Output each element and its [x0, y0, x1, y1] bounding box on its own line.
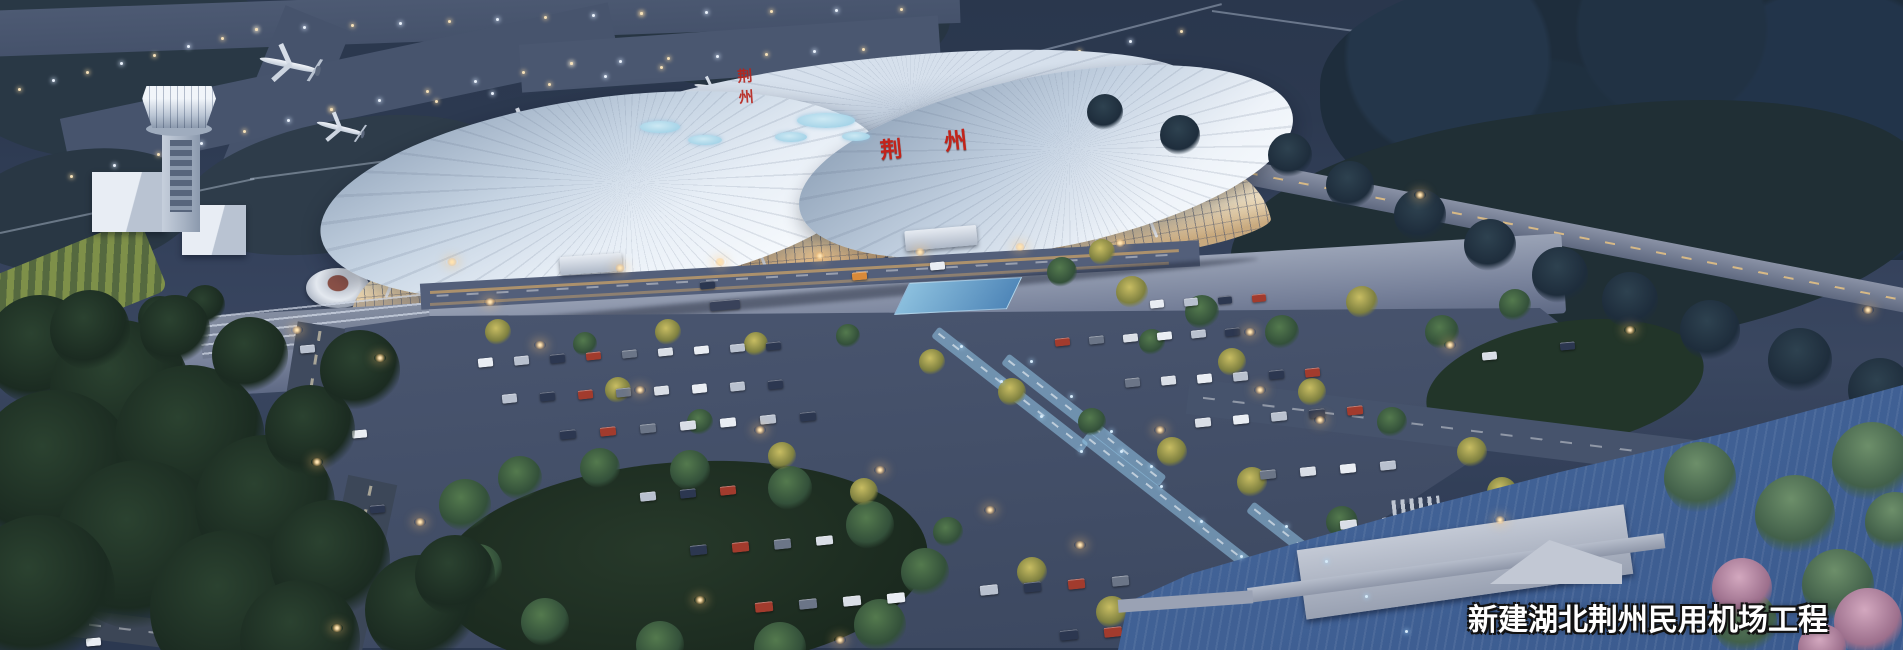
airfield-infield — [590, 0, 950, 90]
taxiway-light — [862, 48, 865, 51]
street-light — [914, 248, 926, 256]
tree — [498, 456, 542, 500]
walkway-light — [1040, 415, 1043, 418]
car — [816, 535, 834, 546]
car — [658, 347, 674, 357]
taxiway-light — [900, 8, 903, 11]
car — [550, 353, 566, 363]
car — [1466, 510, 1484, 521]
car — [852, 271, 868, 280]
taxiway-light — [619, 60, 622, 63]
tree — [670, 450, 710, 490]
taxiway-light — [255, 28, 258, 31]
car — [560, 429, 577, 440]
street-light — [1114, 239, 1126, 247]
tree — [1160, 115, 1200, 155]
tree — [1268, 133, 1312, 177]
car — [1269, 369, 1285, 379]
walkway-light — [1000, 380, 1003, 383]
street-light — [1244, 328, 1256, 336]
car — [774, 538, 792, 549]
tree — [636, 621, 684, 650]
car — [1382, 516, 1400, 527]
facade-strut — [513, 218, 543, 286]
airplane-icon — [690, 73, 734, 104]
tree — [1680, 300, 1740, 360]
terminal-sign-far: 荆州 — [737, 62, 791, 107]
car — [1148, 623, 1167, 635]
tree — [1832, 422, 1903, 502]
tree — [850, 478, 878, 506]
car — [654, 385, 670, 395]
car — [578, 389, 594, 399]
car — [622, 349, 638, 359]
tree — [768, 442, 796, 470]
tree — [854, 599, 906, 650]
walkway-light — [1405, 630, 1408, 633]
walkway-light — [1285, 525, 1288, 528]
facade-strut — [737, 198, 767, 266]
car — [692, 383, 708, 393]
walkway-light — [1160, 485, 1163, 488]
car — [930, 261, 946, 270]
car — [300, 344, 316, 353]
tree — [1406, 546, 1438, 578]
tree — [1768, 328, 1832, 392]
facade-strut — [1095, 174, 1125, 242]
car — [768, 379, 784, 389]
taxiway-light — [1129, 40, 1132, 43]
car — [1340, 463, 1357, 474]
tree — [1566, 506, 1598, 538]
taxiway-light — [604, 75, 607, 78]
car — [600, 426, 617, 436]
taxiway-light — [770, 10, 773, 13]
car — [1420, 574, 1438, 585]
utility-building — [92, 172, 166, 232]
tree — [933, 517, 963, 547]
taxiway-light — [977, 70, 980, 73]
car — [720, 417, 737, 427]
taxiway-light — [399, 22, 402, 25]
tree — [485, 319, 511, 345]
street-light — [1494, 516, 1506, 524]
taxiway-light — [544, 16, 547, 19]
terminal-roof-left-wing — [307, 59, 897, 332]
tree — [1848, 358, 1903, 422]
car — [760, 414, 776, 424]
car — [1024, 581, 1042, 592]
footbridge — [1247, 533, 1665, 603]
street-light — [1074, 541, 1086, 549]
street-light — [1862, 306, 1874, 314]
car — [1197, 373, 1213, 383]
tree — [439, 479, 491, 531]
tree — [1313, 633, 1347, 650]
street-light — [694, 596, 706, 604]
taxiway-light — [474, 80, 477, 83]
street-light — [834, 636, 846, 644]
car — [478, 357, 494, 367]
roof-skylight — [688, 135, 722, 145]
tree — [1464, 219, 1516, 271]
facade-strut — [1129, 170, 1159, 238]
bus — [710, 299, 741, 312]
car — [1482, 351, 1498, 360]
taxiway-light — [1028, 60, 1031, 63]
car — [1068, 578, 1086, 589]
tree — [919, 349, 945, 375]
taxiway-light — [570, 62, 573, 65]
terminal-roof-right-wing — [783, 30, 1309, 295]
airfield-infield — [0, 0, 280, 160]
walkway-light — [1030, 360, 1033, 363]
car — [1123, 333, 1139, 343]
car — [887, 592, 906, 604]
tree — [1602, 272, 1658, 328]
car — [730, 381, 746, 391]
car — [1508, 566, 1526, 577]
tree — [1457, 437, 1487, 467]
car — [586, 351, 602, 361]
street-light — [374, 354, 386, 362]
terminal-facade-right — [1051, 139, 1274, 274]
street-light — [874, 466, 886, 474]
car — [1150, 299, 1165, 309]
taxiway-light — [378, 99, 381, 102]
car — [1195, 417, 1212, 427]
facade-strut — [973, 184, 1003, 252]
facade-strut — [939, 188, 969, 256]
taxiway-light — [303, 26, 306, 29]
taxiway-light — [592, 14, 595, 17]
control-tower-windows — [170, 140, 192, 212]
tree — [655, 319, 681, 345]
car — [1252, 293, 1267, 303]
taxiway-light — [716, 55, 719, 58]
car — [1055, 337, 1071, 347]
reflecting-pool — [894, 277, 1022, 315]
tree — [1638, 538, 1672, 572]
perimeter-fence — [1212, 10, 1559, 61]
car — [640, 423, 657, 433]
car — [1300, 466, 1317, 477]
tree — [50, 290, 130, 370]
runway — [0, 0, 961, 57]
street-light — [614, 264, 626, 272]
taxiway-light — [496, 18, 499, 21]
facade-mullions — [1051, 139, 1274, 274]
tree — [1487, 477, 1517, 507]
car — [502, 393, 518, 403]
street-light — [534, 341, 546, 349]
car — [690, 544, 708, 555]
tree — [415, 535, 495, 615]
walkway-light — [1080, 450, 1083, 453]
car — [732, 541, 750, 552]
tree — [521, 598, 569, 646]
tree — [1664, 442, 1736, 514]
taxiway-light — [765, 53, 768, 56]
taxiway-light — [157, 153, 160, 156]
car — [1225, 327, 1241, 337]
tree — [1755, 475, 1835, 555]
taxiway-light — [426, 90, 429, 93]
taxiway-light — [491, 92, 494, 95]
airplane-icon — [252, 37, 327, 92]
car — [680, 488, 697, 499]
airport-rendering-scene: 荆州 荆 州 新建湖北荆州民用机场工程 — [0, 0, 1903, 650]
facade-strut — [385, 230, 415, 298]
taxiway-light — [287, 119, 290, 122]
airfield-infield — [0, 134, 207, 286]
street-light — [984, 506, 996, 514]
walkway-light — [1110, 430, 1113, 433]
street-light — [1154, 426, 1166, 434]
walkway-light — [1120, 450, 1123, 453]
taxiway-light — [120, 62, 123, 65]
tree — [1078, 408, 1106, 436]
taxiway-light — [875, 90, 878, 93]
car — [1305, 367, 1321, 377]
roof-ribs — [783, 30, 1309, 295]
car — [1161, 375, 1177, 385]
street-light — [714, 258, 726, 266]
car — [720, 485, 737, 496]
street-light — [1624, 326, 1636, 334]
car — [1424, 513, 1442, 524]
car — [1125, 377, 1141, 387]
roof-ribs — [307, 59, 897, 332]
car — [1060, 629, 1079, 641]
car — [1089, 335, 1105, 345]
car — [1560, 341, 1576, 350]
street-light — [634, 386, 646, 394]
tree — [1265, 315, 1299, 349]
street-light — [1444, 341, 1456, 349]
car — [766, 341, 782, 351]
tree — [1532, 247, 1588, 303]
taxiway-light — [86, 71, 89, 74]
taxiway-light — [835, 9, 838, 12]
tree — [212, 317, 288, 393]
facade-strut — [587, 212, 617, 280]
roof-skylight — [842, 132, 870, 141]
walkway-light — [1150, 465, 1153, 468]
car — [1347, 405, 1363, 415]
car — [1104, 626, 1123, 638]
car — [370, 504, 386, 513]
car — [514, 355, 530, 365]
tree — [580, 448, 620, 488]
roof-skylight — [775, 132, 807, 142]
control-tower-cab — [142, 86, 216, 128]
car — [700, 280, 716, 289]
car — [680, 420, 697, 430]
utility-building — [182, 205, 246, 255]
car — [800, 411, 816, 421]
roof-skylight — [640, 121, 680, 133]
terminal-facade-left — [341, 167, 897, 335]
street-light — [754, 426, 766, 434]
car — [1112, 575, 1130, 586]
tree — [1499, 289, 1531, 321]
car — [540, 391, 556, 401]
car — [980, 584, 998, 596]
taxiway-light — [435, 100, 438, 103]
car — [1233, 371, 1249, 381]
roof-skylight — [797, 113, 855, 128]
taxiway-light — [705, 11, 708, 14]
tree — [1087, 94, 1123, 130]
car — [694, 345, 710, 355]
walkway-light — [1240, 555, 1243, 558]
airplane-part — [542, 125, 547, 133]
tree — [836, 324, 860, 348]
taxiway — [60, 2, 620, 177]
car — [799, 598, 818, 610]
car — [1271, 411, 1287, 421]
car — [616, 387, 632, 397]
car — [640, 491, 657, 502]
taxiway-light — [660, 66, 663, 69]
facade-mullions — [341, 167, 897, 335]
taxiway-light — [243, 130, 246, 133]
tree — [1047, 257, 1077, 287]
street-light — [446, 258, 458, 266]
tree — [1116, 276, 1148, 308]
street-light — [1414, 191, 1426, 199]
taxiway-light — [200, 142, 203, 145]
control-tower-shaft — [162, 130, 200, 232]
facade-strut — [419, 226, 449, 294]
tree — [1377, 407, 1407, 437]
tree — [744, 332, 768, 356]
perimeter-fence — [0, 178, 255, 234]
car — [1218, 295, 1233, 305]
car — [755, 601, 774, 613]
tree — [1157, 437, 1187, 467]
street-light — [414, 518, 426, 526]
car — [1157, 331, 1173, 341]
terminal-sign-char: 荆 — [878, 131, 903, 165]
taxiway-light — [351, 24, 354, 27]
tree — [846, 501, 894, 549]
taxiway-light — [1078, 50, 1081, 53]
taxiway-light — [52, 79, 55, 82]
car — [1464, 570, 1482, 581]
tree — [320, 330, 400, 410]
pavilion-roof — [1490, 540, 1622, 584]
street-light — [814, 252, 826, 260]
tree — [1096, 596, 1128, 628]
tree — [901, 548, 949, 596]
street-light — [484, 298, 496, 306]
street-light — [311, 458, 323, 466]
taxiway-light — [667, 57, 670, 60]
taxiway-light — [153, 54, 156, 57]
taxiway-light — [522, 71, 525, 74]
taxiway-light — [926, 80, 929, 83]
taxiway-light — [18, 88, 21, 91]
tree — [754, 622, 806, 650]
walkway-light — [1200, 520, 1203, 523]
walkway-light — [1365, 595, 1368, 598]
tree — [1346, 286, 1378, 318]
circular-building — [306, 268, 370, 308]
airplane-icon — [311, 106, 371, 152]
taxiway-light — [187, 45, 190, 48]
taxiway-light — [813, 50, 816, 53]
facade-strut — [479, 222, 509, 290]
control-tower-ring — [146, 122, 212, 136]
tree — [768, 466, 812, 510]
taxiway-light — [221, 37, 224, 40]
car — [1260, 469, 1277, 480]
street-light — [1014, 243, 1026, 251]
tree — [140, 295, 210, 365]
taxiway-light — [640, 12, 643, 15]
street-light — [1314, 416, 1326, 424]
street-light — [331, 624, 343, 632]
car — [730, 343, 746, 353]
taxiway-light — [1180, 30, 1183, 33]
tree — [1712, 558, 1772, 618]
tree — [1231, 595, 1265, 629]
taxiway-light — [448, 20, 451, 23]
car — [1380, 460, 1397, 471]
airplane-part — [314, 65, 321, 76]
walkway-light — [1325, 560, 1328, 563]
tree — [1298, 378, 1326, 406]
tree — [1089, 239, 1115, 265]
walkway-light — [1070, 395, 1073, 398]
tree — [1326, 161, 1374, 209]
taxiway-light — [70, 175, 73, 178]
street-light — [1254, 386, 1266, 394]
walkway-light — [960, 345, 963, 348]
terminal-sign-char: 州 — [942, 121, 968, 157]
taxiway-light — [548, 83, 551, 86]
taxiway-light — [113, 164, 116, 167]
perimeter-fence — [878, 3, 1222, 94]
airplane-icon — [495, 102, 553, 146]
car — [1191, 329, 1207, 339]
airplane-part — [726, 88, 730, 94]
street-light — [291, 326, 303, 334]
car — [1233, 414, 1249, 424]
car — [843, 595, 862, 607]
